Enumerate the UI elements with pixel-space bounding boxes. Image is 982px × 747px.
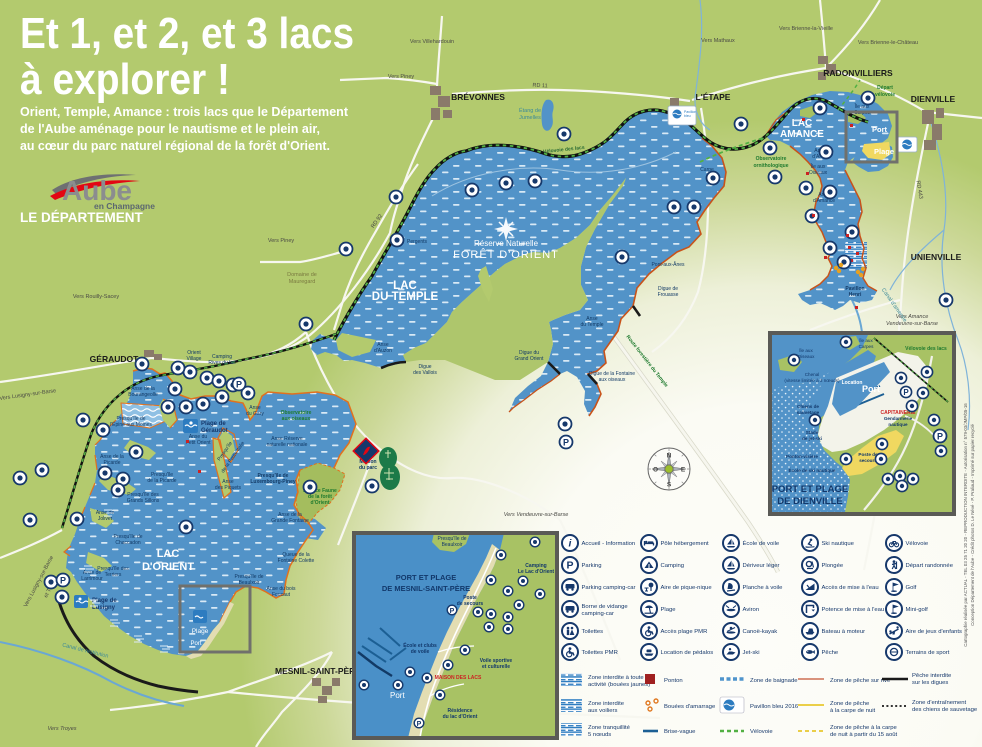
- svg-text:LE DÉPARTEMENT: LE DÉPARTEMENT: [20, 210, 144, 225]
- svg-text:de voile: de voile: [411, 649, 430, 655]
- svg-text:Rives du lac: Rives du lac: [208, 360, 236, 366]
- svg-text:Vers Villehardouin: Vers Villehardouin: [410, 39, 454, 45]
- svg-text:de l'Aube aménage pour le naut: de l'Aube aménage pour le nautisme et le…: [20, 122, 320, 136]
- svg-text:au cœur du parc naturel région: au cœur du parc naturel régional de la f…: [20, 139, 330, 153]
- svg-text:Jolivet: Jolivet: [98, 516, 113, 522]
- svg-text:5 nœuds: 5 nœuds: [588, 732, 611, 738]
- svg-text:Cartographie réalisée par ACTU: Cartographie réalisée par ACTUAL - TEL 0…: [963, 403, 968, 647]
- svg-text:aux oiseaux: aux oiseaux: [282, 416, 311, 422]
- svg-text:Vers Vendeuvre-sur-Barse: Vers Vendeuvre-sur-Barse: [504, 512, 569, 518]
- svg-text:Grand Orient: Grand Orient: [515, 356, 545, 362]
- svg-text:Toilettes PMR: Toilettes PMR: [582, 650, 618, 656]
- svg-text:d'Auzon: d'Auzon: [374, 348, 392, 354]
- svg-text:Le Lac d'Orient: Le Lac d'Orient: [518, 569, 555, 575]
- svg-text:activité (bouées jaunes): activité (bouées jaunes): [588, 682, 650, 688]
- svg-text:O: O: [653, 467, 658, 474]
- svg-text:Vélovoie des lacs: Vélovoie des lacs: [905, 346, 947, 352]
- svg-text:Ski nautique: Ski nautique: [822, 541, 855, 547]
- svg-text:naturelle nationale: naturelle nationale: [267, 442, 308, 448]
- svg-text:Zone tranquillité: Zone tranquillité: [588, 725, 631, 731]
- svg-text:S: S: [667, 482, 672, 489]
- svg-text:P: P: [450, 608, 455, 615]
- svg-text:Vers Brienne-le-Château: Vers Brienne-le-Château: [858, 40, 918, 46]
- svg-text:Zone de baignade: Zone de baignade: [750, 678, 798, 684]
- svg-text:L'ÉTAPE: L'ÉTAPE: [696, 92, 731, 102]
- svg-text:Canoë-kayak: Canoë-kayak: [743, 629, 778, 635]
- svg-text:du parc: du parc: [359, 465, 377, 471]
- svg-text:à la carpe de nuit: à la carpe de nuit: [830, 708, 876, 714]
- svg-text:P: P: [566, 560, 573, 572]
- svg-text:Carpes: Carpes: [859, 344, 875, 349]
- svg-text:LAC: LAC: [157, 548, 180, 560]
- svg-text:Bourangeolle: Bourangeolle: [128, 392, 158, 398]
- svg-text:Vers Piney: Vers Piney: [388, 74, 415, 80]
- svg-text:Étang de: Étang de: [519, 107, 541, 114]
- svg-text:Départ randonnée: Départ randonnée: [906, 563, 954, 569]
- svg-text:Oiseaux: Oiseaux: [798, 354, 816, 359]
- svg-text:Chenal: Chenal: [805, 372, 820, 377]
- svg-text:Zone de pêche: Zone de pêche: [830, 701, 870, 707]
- svg-text:Jet-ski: Jet-ski: [743, 650, 760, 656]
- svg-text:Toilettes: Toilettes: [582, 629, 604, 635]
- svg-text:FORÊT D'ORIENT: FORÊT D'ORIENT: [453, 248, 559, 261]
- svg-text:Brise-vague: Brise-vague: [664, 729, 696, 735]
- svg-text:Domaine de: Domaine de: [287, 272, 317, 278]
- svg-text:Terriers: Terriers: [105, 572, 122, 578]
- svg-text:Parking: Parking: [582, 563, 602, 569]
- svg-text:Accès de mise à l'eau: Accès de mise à l'eau: [822, 585, 879, 591]
- svg-text:Poste de: Poste de: [858, 452, 878, 457]
- svg-text:Pavillon bleu 2016: Pavillon bleu 2016: [750, 704, 799, 710]
- svg-text:des Vallois: des Vallois: [413, 370, 437, 376]
- svg-text:UNIENVILLE: UNIENVILLE: [911, 252, 962, 262]
- svg-text:Géraudot: Géraudot: [201, 428, 228, 434]
- svg-text:Dériveur léger: Dériveur léger: [743, 563, 780, 569]
- svg-text:Aviron: Aviron: [743, 607, 760, 613]
- svg-text:Camping: Camping: [661, 563, 685, 569]
- svg-text:Ponton-visière: Ponton-visière: [786, 454, 818, 459]
- svg-text:École de ski nautique: École de ski nautique: [789, 466, 836, 473]
- svg-text:du Gary: du Gary: [246, 411, 264, 417]
- svg-text:Et 1, et 2, et 3 lacs: Et 1, et 2, et 3 lacs: [20, 9, 354, 58]
- svg-text:de la Picarde: de la Picarde: [147, 478, 176, 484]
- svg-text:du lac d'Orient: du lac d'Orient: [443, 714, 478, 720]
- svg-text:Planche à voile: Planche à voile: [743, 585, 784, 591]
- svg-text:Plongée: Plongée: [822, 563, 844, 569]
- svg-text:du Temple: du Temple: [581, 322, 604, 328]
- svg-text:Vélovoie: Vélovoie: [750, 729, 773, 735]
- svg-text:à explorer !: à explorer !: [20, 55, 230, 104]
- svg-text:sur les digues: sur les digues: [912, 680, 948, 686]
- svg-text:Stade: Stade: [806, 430, 819, 435]
- svg-text:nautique: nautique: [888, 422, 908, 427]
- svg-text:Pergents: Pergents: [407, 239, 428, 245]
- svg-text:Île aux: Île aux: [810, 163, 826, 170]
- svg-text:P: P: [563, 438, 569, 448]
- svg-text:Accueil - Information: Accueil - Information: [582, 541, 636, 547]
- svg-text:Mauregard: Mauregard: [289, 279, 316, 285]
- svg-text:Conception Département de l'Au: Conception Département de l'Aube - Crédi…: [970, 424, 975, 626]
- svg-text:D'ORIENT: D'ORIENT: [142, 561, 194, 573]
- svg-text:AMANCE: AMANCE: [780, 129, 824, 140]
- svg-text:RD 11: RD 11: [532, 83, 547, 90]
- svg-text:Île aux: Île aux: [798, 347, 813, 353]
- svg-text:ornithologique: ornithologique: [754, 163, 789, 169]
- svg-text:Pont-aux-Ânes: Pont-aux-Ânes: [651, 261, 685, 268]
- svg-text:RADONVILLIERS: RADONVILLIERS: [823, 68, 893, 78]
- svg-text:Plage de: Plage de: [201, 421, 226, 427]
- svg-text:Zone de pêche sur rive: Zone de pêche sur rive: [830, 678, 891, 684]
- svg-text:Henri: Henri: [849, 292, 862, 298]
- svg-text:Réserve Naturelle: Réserve Naturelle: [474, 239, 539, 248]
- svg-text:Observatoire: Observatoire: [756, 156, 787, 162]
- svg-text:Pôle hébergement: Pôle hébergement: [661, 541, 710, 547]
- svg-text:Oiseaux: Oiseaux: [809, 170, 828, 176]
- svg-text:vélovoie: vélovoie: [875, 92, 895, 98]
- svg-text:Vers Piney: Vers Piney: [268, 238, 295, 244]
- svg-text:Borne de vidange: Borne de vidange: [582, 604, 629, 610]
- svg-text:Zone de pêche à la carpe: Zone de pêche à la carpe: [830, 725, 898, 731]
- svg-text:Potence de mise à l'eau: Potence de mise à l'eau: [822, 607, 885, 613]
- svg-text:Port: Port: [872, 125, 888, 134]
- svg-text:DU TEMPLE: DU TEMPLE: [372, 291, 439, 303]
- svg-text:Parking camping-car: Parking camping-car: [582, 585, 636, 591]
- svg-text:Accès plage PMR: Accès plage PMR: [661, 629, 708, 635]
- svg-text:Pêche interdite: Pêche interdite: [912, 673, 952, 679]
- svg-text:Zone interdite: Zone interdite: [588, 701, 625, 707]
- svg-text:bleu: bleu: [684, 114, 691, 118]
- svg-text:Bateau à moteur: Bateau à moteur: [822, 629, 866, 635]
- svg-text:Gendarmerie: Gendarmerie: [884, 416, 913, 421]
- svg-text:Aire de pique-nique: Aire de pique-nique: [661, 585, 713, 591]
- svg-text:P: P: [937, 432, 943, 442]
- svg-text:Beaulxoir: Beaulxoir: [442, 542, 463, 548]
- svg-text:Vers Mathaux: Vers Mathaux: [701, 38, 735, 44]
- svg-text:Port: Port: [390, 691, 405, 700]
- svg-text:GÉRAUDOT: GÉRAUDOT: [90, 354, 139, 364]
- svg-text:Vélovoie: Vélovoie: [906, 541, 929, 547]
- svg-text:P: P: [903, 388, 909, 397]
- svg-text:Vers Brienne-la-Vieille: Vers Brienne-la-Vieille: [779, 26, 833, 32]
- svg-text:Orient, Temple, Amance : trois: Orient, Temple, Amance : trois lacs que …: [20, 105, 349, 119]
- svg-text:de jet-ski: de jet-ski: [802, 436, 822, 441]
- svg-text:Jumelles: Jumelles: [519, 115, 541, 121]
- svg-text:Luxembourg-Piney: Luxembourg-Piney: [250, 479, 296, 485]
- svg-text:Île aux: Île aux: [858, 337, 873, 343]
- svg-text:Plage: Plage: [192, 628, 209, 635]
- svg-text:Pêche: Pêche: [822, 650, 839, 656]
- svg-text:Golf: Golf: [906, 585, 917, 591]
- svg-text:Grands Sillons: Grands Sillons: [127, 498, 160, 504]
- svg-text:Foucaut: Foucaut: [272, 592, 291, 598]
- svg-text:P: P: [236, 380, 242, 390]
- svg-text:Vers Troyes: Vers Troyes: [47, 726, 76, 732]
- svg-text:l'Épine aux Moines: l'Épine aux Moines: [110, 421, 152, 428]
- svg-text:de nuit à partir du 15 août: de nuit à partir du 15 août: [830, 732, 897, 738]
- svg-text:Aire de jeux d'enfants: Aire de jeux d'enfants: [906, 629, 963, 635]
- svg-text:BRÉVONNES: BRÉVONNES: [451, 92, 505, 102]
- svg-text:Fontaine Colette: Fontaine Colette: [278, 558, 315, 564]
- svg-text:Bouées d'amarrage: Bouées d'amarrage: [664, 704, 716, 710]
- svg-text:PORT ET PLAGE: PORT ET PLAGE: [396, 573, 456, 582]
- svg-text:des chiens de sauvetage: des chiens de sauvetage: [912, 707, 978, 713]
- svg-text:P: P: [60, 576, 66, 586]
- svg-text:Port: Port: [190, 641, 201, 647]
- svg-text:Village: Village: [187, 356, 202, 362]
- svg-text:Location de pédalos: Location de pédalos: [661, 650, 714, 656]
- svg-text:Picarde: Picarde: [104, 460, 121, 466]
- svg-text:Zone interdite à toute: Zone interdite à toute: [588, 675, 644, 681]
- svg-text:Chaccadon: Chaccadon: [115, 540, 141, 546]
- svg-text:Larrimour: Larrimour: [81, 576, 103, 582]
- svg-text:Ponton: Ponton: [664, 678, 683, 684]
- svg-text:camping-car: camping-car: [582, 611, 614, 617]
- svg-text:Grande Fontaine: Grande Fontaine: [271, 518, 309, 524]
- svg-text:Plage: Plage: [661, 607, 677, 613]
- svg-text:MESNIL-SAINT-PÈRE: MESNIL-SAINT-PÈRE: [275, 666, 361, 676]
- svg-text:DIENVILLE: DIENVILLE: [911, 94, 956, 104]
- svg-text:aux oiseaux: aux oiseaux: [599, 377, 626, 383]
- svg-text:P: P: [417, 721, 422, 728]
- svg-text:des Piquets: des Piquets: [215, 485, 242, 491]
- svg-text:PORT ET PLAGE: PORT ET PLAGE: [772, 484, 849, 495]
- svg-text:Chiens de: Chiens de: [797, 404, 819, 409]
- svg-text:(vitesse limitée à 3 nœuds): (vitesse limitée à 3 nœuds): [784, 378, 840, 383]
- svg-text:Plage: Plage: [874, 147, 894, 156]
- svg-text:Départ: Départ: [877, 85, 893, 91]
- svg-text:MAISON DES LACS: MAISON DES LACS: [435, 675, 482, 681]
- svg-text:Zone d'entraînement: Zone d'entraînement: [912, 700, 967, 706]
- svg-text:secours: secours: [859, 458, 877, 463]
- svg-text:aux voiliers: aux voiliers: [588, 708, 618, 714]
- svg-text:Vendeuvre-sur-Barse: Vendeuvre-sur-Barse: [886, 321, 938, 327]
- svg-text:Mini-golf: Mini-golf: [906, 607, 929, 613]
- svg-text:N: N: [667, 453, 672, 460]
- svg-text:École et clubs: École et clubs: [403, 641, 437, 649]
- svg-text:et culturelle: et culturelle: [482, 664, 510, 670]
- svg-text:DE MESNIL-SAINT-PÈRE: DE MESNIL-SAINT-PÈRE: [382, 584, 470, 593]
- svg-text:École de voile: École de voile: [743, 540, 780, 547]
- svg-text:Terrains de sport: Terrains de sport: [906, 650, 950, 656]
- svg-text:Petit Orient: Petit Orient: [185, 440, 211, 446]
- svg-text:Vers Rouilly-Sacey: Vers Rouilly-Sacey: [73, 294, 119, 300]
- svg-text:DE DIENVILLE: DE DIENVILLE: [777, 496, 842, 507]
- svg-text:E: E: [681, 467, 686, 474]
- svg-text:Frouasse: Frouasse: [658, 292, 679, 298]
- svg-text:d'Orient: d'Orient: [311, 500, 330, 506]
- svg-text:de secours: de secours: [457, 601, 484, 607]
